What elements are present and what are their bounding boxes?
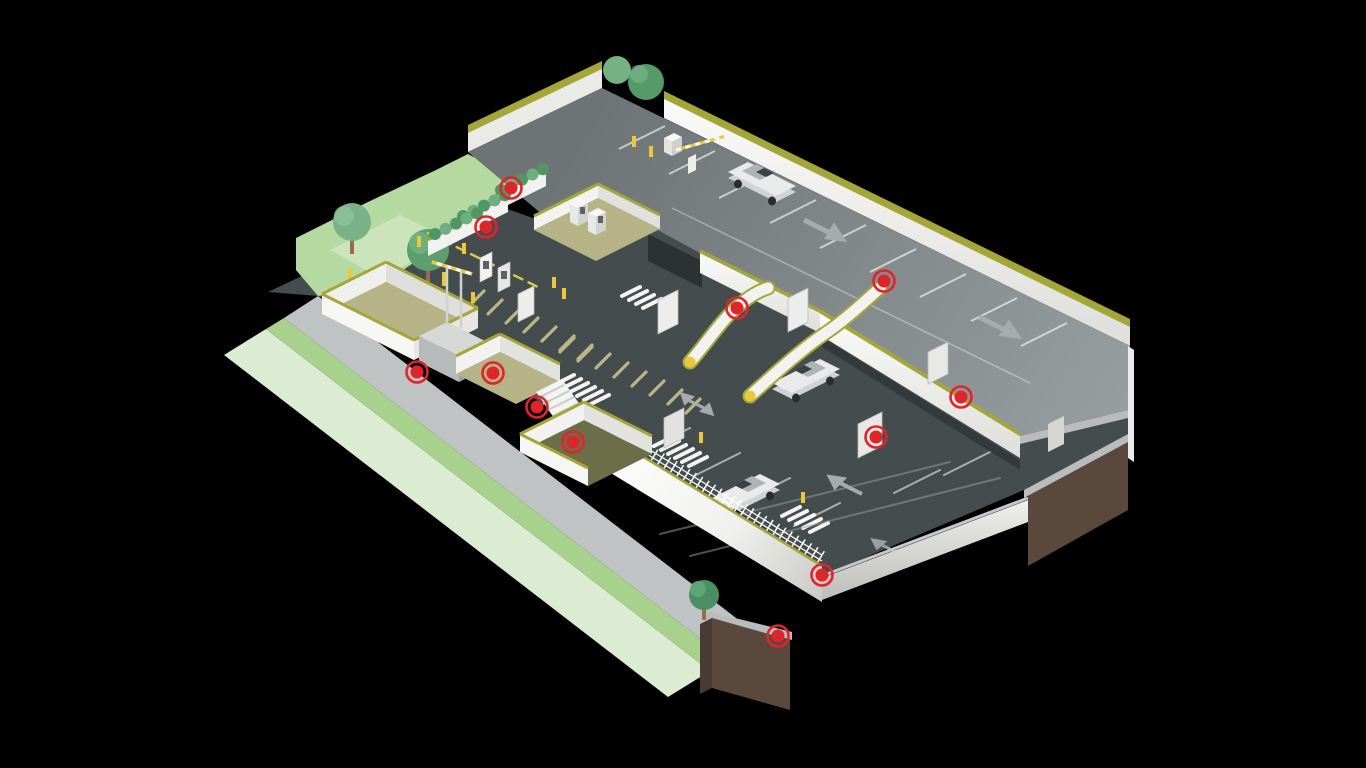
- hotspot-4[interactable]: [727, 298, 748, 319]
- bollard: [552, 277, 556, 288]
- bollard: [699, 432, 703, 443]
- bollard: [462, 243, 466, 254]
- hotspot-9[interactable]: [951, 387, 972, 408]
- hotspot-7[interactable]: [527, 397, 548, 418]
- hotspot-11[interactable]: [812, 565, 833, 586]
- pay-kiosk: [570, 199, 588, 226]
- parking-facility-illustration: [0, 0, 1366, 768]
- hotspot-5[interactable]: [407, 362, 428, 383]
- bollard: [417, 236, 421, 247]
- bollard: [471, 292, 475, 303]
- bollard: [562, 288, 566, 299]
- hotspot-8[interactable]: [563, 432, 584, 453]
- tree-top-2: [628, 64, 664, 100]
- hotspot-6[interactable]: [483, 363, 504, 384]
- bollard: [632, 136, 636, 147]
- hotspot-1[interactable]: [501, 178, 522, 199]
- hotspot-2[interactable]: [476, 217, 497, 238]
- tree-top-1: [603, 56, 631, 84]
- hotspot-10[interactable]: [866, 427, 887, 448]
- hotspot-12[interactable]: [768, 626, 789, 647]
- pay-kiosk: [588, 208, 606, 235]
- bollard: [801, 492, 805, 503]
- hotspot-3[interactable]: [874, 271, 895, 292]
- bollard: [442, 272, 446, 286]
- bollard: [649, 146, 653, 157]
